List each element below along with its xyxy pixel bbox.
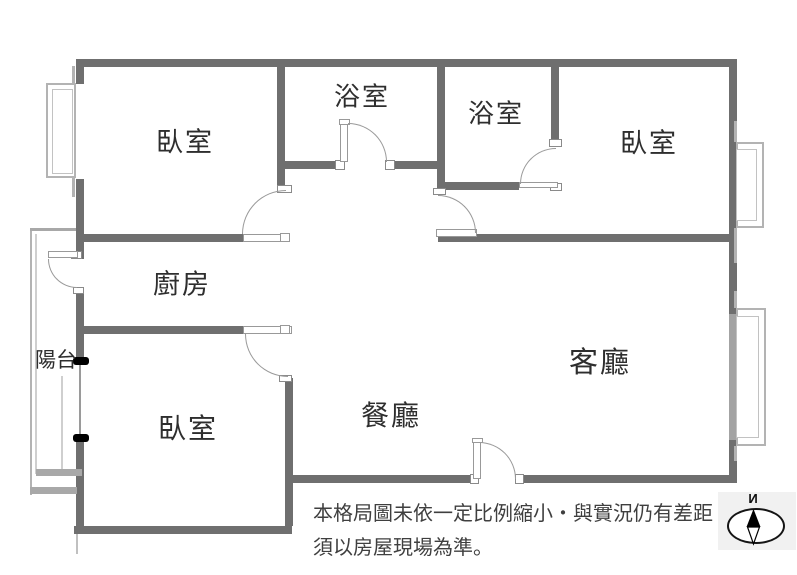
label-bathroom-1: 浴室 <box>334 77 390 114</box>
wall-left-outer-d <box>76 441 84 534</box>
wall-left-outer-a <box>76 59 84 84</box>
balcony-bar-outer <box>30 487 77 494</box>
disclaimer-line-1: 本格局圖未依一定比例縮小・與實況仍有差距・ <box>313 497 733 531</box>
floor-plan: 臥室 浴室 浴室 臥室 廚房 陽台 臥室 餐廳 客廳 本格局圖未依一定比例縮小・… <box>0 0 797 575</box>
balcony-edge-top <box>30 228 76 231</box>
window-left-stub-top <box>72 66 75 84</box>
wall-bedroom2-bottom <box>438 234 736 242</box>
window-right-lower-stub-bottom <box>734 446 737 461</box>
window-right-upper-stub-bottom <box>734 228 737 263</box>
balcony-edge-left-outer <box>30 228 32 495</box>
wall-bottom-living-right <box>523 475 737 483</box>
jamb-balcony-door-bottom <box>73 287 84 294</box>
label-bedroom-bottom-left: 臥室 <box>158 407 218 447</box>
label-balcony: 陽台 <box>35 344 77 374</box>
door-leaf-bath1 <box>340 122 348 162</box>
sliding-door-line <box>79 361 81 441</box>
label-bathroom-2: 浴室 <box>468 94 524 131</box>
wall-bath1-bottom-right <box>393 161 445 169</box>
label-living-room: 客廳 <box>569 339 631 381</box>
window-right-lower-pane <box>736 316 759 438</box>
wall-bedroom1-bottom <box>76 234 243 242</box>
door-arc-entry <box>479 442 516 479</box>
balcony-bar-inner <box>36 469 82 476</box>
window-right-lower-stub-top <box>734 291 737 308</box>
balcony-stub-bottom <box>76 534 78 554</box>
compass-needle-icon <box>744 507 763 547</box>
door-arc-bedroom1 <box>242 190 286 234</box>
window-left-stub-bottom <box>72 178 75 197</box>
door-arc-bedroom2 <box>438 195 476 233</box>
window-right-upper-pane <box>736 149 757 221</box>
door-leaf-bedroom1-cap <box>280 233 290 242</box>
disclaimer-line-2: 須以房屋現場為準。 <box>313 531 733 565</box>
jamb-bath2-wall-end <box>549 139 562 147</box>
door-arc-bedroom3 <box>245 334 288 377</box>
door-arc-bath1 <box>348 123 387 162</box>
door-arc-balcony <box>48 259 77 288</box>
label-dining-room: 餐廳 <box>361 394 421 434</box>
label-bedroom-top-left: 臥室 <box>156 121 214 160</box>
label-kitchen: 廚房 <box>153 263 211 302</box>
wall-bedroom3-bottom <box>74 526 292 534</box>
window-right-upper-stub-top <box>734 121 737 142</box>
window-left-pane <box>52 89 73 174</box>
sliding-door-marker-bottom <box>73 434 89 442</box>
wall-bottom-living-left <box>285 475 471 483</box>
wall-left-outer-b <box>76 179 84 259</box>
door-leaf-bedroom3-cap <box>280 325 290 334</box>
wall-bedroom3-right <box>285 378 293 526</box>
wall-kitchen-bottom <box>76 326 243 334</box>
wall-bath2-right <box>551 59 559 139</box>
jamb-bedroom2-door <box>433 188 446 195</box>
door-leaf-balcony <box>48 251 78 258</box>
wall-top-outer <box>76 59 737 67</box>
wall-bath2-bottom <box>437 182 519 190</box>
label-bedroom-top-right: 臥室 <box>620 122 678 161</box>
jamb-entry-right <box>515 474 524 484</box>
balcony-rail-line <box>61 376 63 469</box>
door-arc-bath2 <box>520 148 556 184</box>
wall-bath1-bottom-left <box>283 161 339 169</box>
compass-north-label: N <box>746 491 760 506</box>
disclaimer-text: 本格局圖未依一定比例縮小・與實況仍有差距・ 須以房屋現場為準。 <box>313 497 733 565</box>
